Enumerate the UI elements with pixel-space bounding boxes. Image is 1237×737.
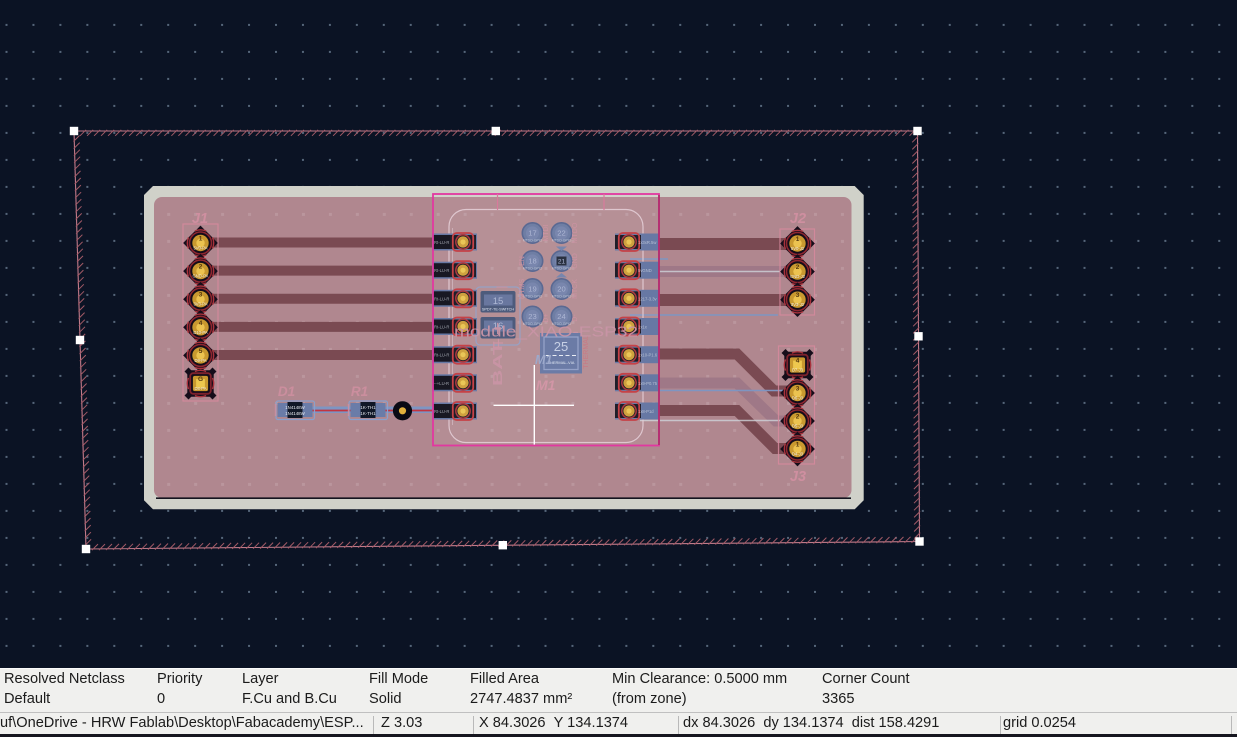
- svg-text:3: 3: [199, 292, 203, 299]
- svg-text:2: 2: [796, 264, 800, 271]
- svg-text:1K-TH1: 1K-TH1: [360, 405, 376, 410]
- svg-text:5V0-J2: 5V0-J2: [791, 246, 805, 251]
- svg-text:1: 1: [796, 236, 800, 243]
- svg-text:4: 4: [199, 320, 203, 327]
- svg-text:J3: J3: [790, 469, 806, 485]
- svg-text:3V3-PA: 3V3-PA: [193, 302, 207, 307]
- svg-text:D4-J3: D4-J3: [792, 452, 804, 457]
- svg-text:D7-J3: D7-J3: [792, 368, 804, 373]
- svg-text:J2: J2: [790, 211, 806, 227]
- svg-text:D9-PA: D9-PA: [194, 358, 206, 363]
- svg-text:3V3-J2: 3V3-J2: [791, 302, 805, 307]
- svg-text:G: G: [198, 376, 203, 383]
- svg-text:1N4148W: 1N4148W: [285, 411, 305, 416]
- svg-text:5V0-PA: 5V0-PA: [193, 246, 207, 251]
- svg-text:3: 3: [796, 292, 800, 299]
- svg-text:1K-TH1: 1K-TH1: [360, 411, 376, 416]
- svg-text:2: 2: [199, 264, 203, 271]
- svg-text:R1: R1: [351, 384, 368, 399]
- svg-text:D10-PA: D10-PA: [193, 330, 208, 335]
- svg-text:D5-J3: D5-J3: [792, 424, 804, 429]
- svg-text:1N4148W: 1N4148W: [285, 405, 305, 410]
- svg-text:D1: D1: [278, 384, 295, 399]
- svg-text:4: 4: [796, 358, 800, 365]
- svg-text:2: 2: [796, 414, 800, 421]
- svg-text:D8-PA: D8-PA: [194, 386, 206, 391]
- svg-text:1: 1: [199, 236, 203, 243]
- svg-text:1: 1: [796, 442, 800, 449]
- svg-text:GND-J2: GND-J2: [790, 274, 806, 279]
- svg-text:3: 3: [796, 386, 800, 393]
- svg-text:5: 5: [199, 348, 203, 355]
- svg-text:J1: J1: [192, 211, 208, 227]
- svg-text:D6-J3: D6-J3: [792, 396, 804, 401]
- svg-text:GND-PA: GND-PA: [193, 274, 209, 279]
